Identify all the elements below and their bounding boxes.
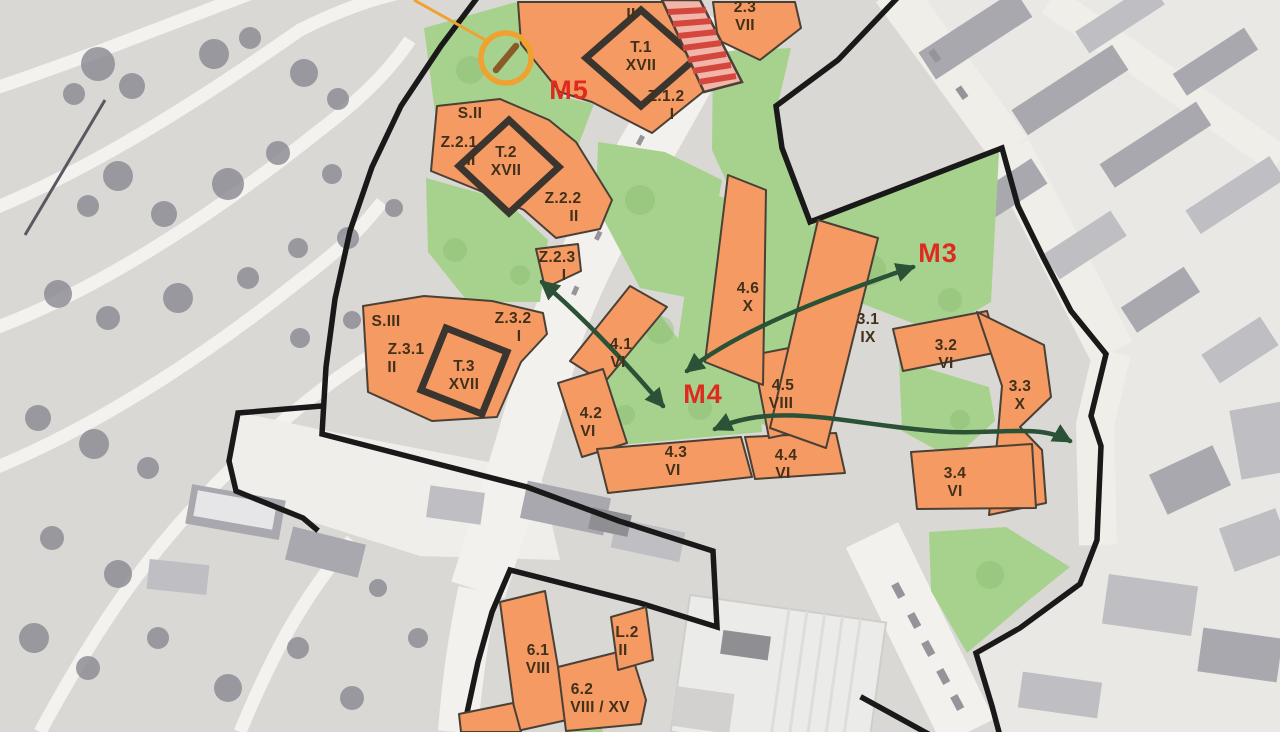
building-label-t2: T.2XVII — [491, 144, 522, 179]
zone-label-m5: M5 — [549, 75, 589, 105]
building-label-s3: S.III — [371, 313, 400, 330]
zone-label-m3: M3 — [918, 238, 958, 268]
zone-label-m4: M4 — [683, 379, 723, 409]
planning-map: IIT.1XVII2.3VIIZ.1.2IS.IIZ.2.1IIT.2XVIIZ… — [0, 0, 1280, 732]
building-label-b45: 4.5VIII — [769, 377, 795, 412]
building-label-b23: 2.3VII — [734, 0, 757, 34]
building-label-t1: T.1XVII — [626, 39, 657, 74]
building-3-4 — [911, 444, 1036, 509]
building-label-partial-top: II — [626, 6, 635, 23]
building-label-t3: T.3XVII — [449, 358, 480, 393]
building-label-s2: S.II — [458, 105, 482, 122]
building-label-b61: 6.1VIII — [526, 642, 550, 677]
